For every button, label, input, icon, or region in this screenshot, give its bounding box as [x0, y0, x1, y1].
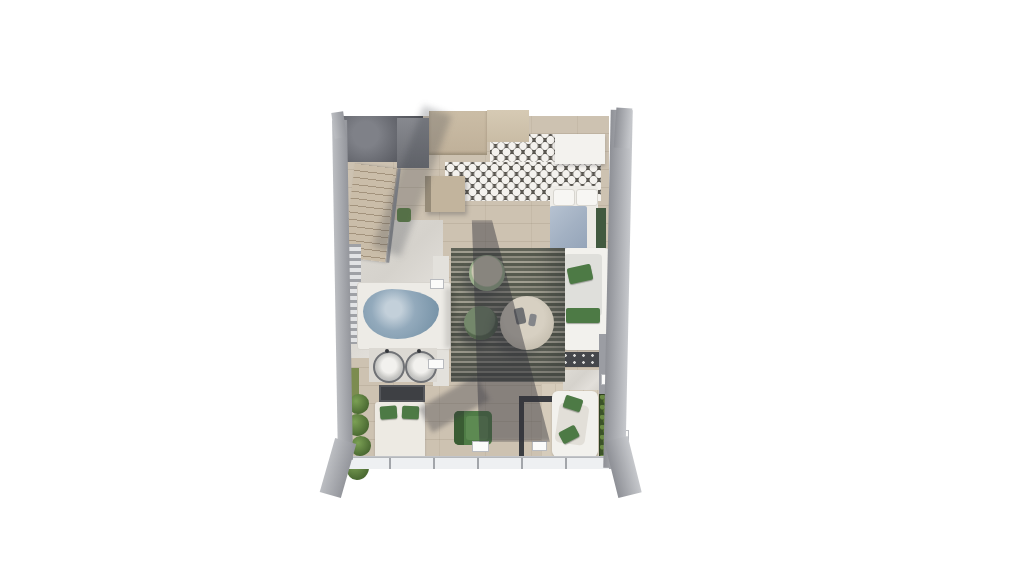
- kitchen-cabinets: [429, 111, 487, 155]
- sofa-seat: [564, 254, 602, 316]
- armchair-cushion: [466, 416, 488, 440]
- glass-marker: [430, 279, 444, 289]
- coffee-table: [500, 296, 554, 350]
- kitchen-cabinets-2: [487, 110, 529, 142]
- white-cabinet: [555, 134, 605, 164]
- partition-frame-h: [519, 396, 553, 402]
- pillow-green: [380, 405, 398, 419]
- pillow-green: [402, 406, 420, 420]
- blanket-blue: [550, 206, 587, 253]
- pillow: [553, 189, 575, 206]
- render-canvas: [0, 0, 1024, 575]
- dark-cabinet: [379, 385, 425, 402]
- pouf: [469, 255, 505, 291]
- glass-marker: [532, 441, 547, 451]
- wall-right-top: [614, 107, 633, 148]
- sink: [373, 351, 405, 383]
- faucet: [417, 349, 421, 353]
- armchair-back: [454, 411, 464, 445]
- floorplan: [333, 108, 632, 492]
- pillow: [576, 189, 598, 206]
- faucet: [385, 349, 389, 353]
- sofa-cushion: [566, 308, 600, 323]
- wall-corner-bottom-right: [604, 436, 641, 498]
- partition-frame-v: [519, 396, 524, 458]
- kitchen-appliance: [397, 118, 429, 168]
- glass-marker: [472, 441, 489, 452]
- pouf: [464, 306, 498, 340]
- window-wall: [345, 456, 611, 469]
- desk-chair-green: [397, 208, 411, 222]
- kitchen-peninsula: [425, 176, 465, 212]
- glass-marker: [428, 359, 444, 369]
